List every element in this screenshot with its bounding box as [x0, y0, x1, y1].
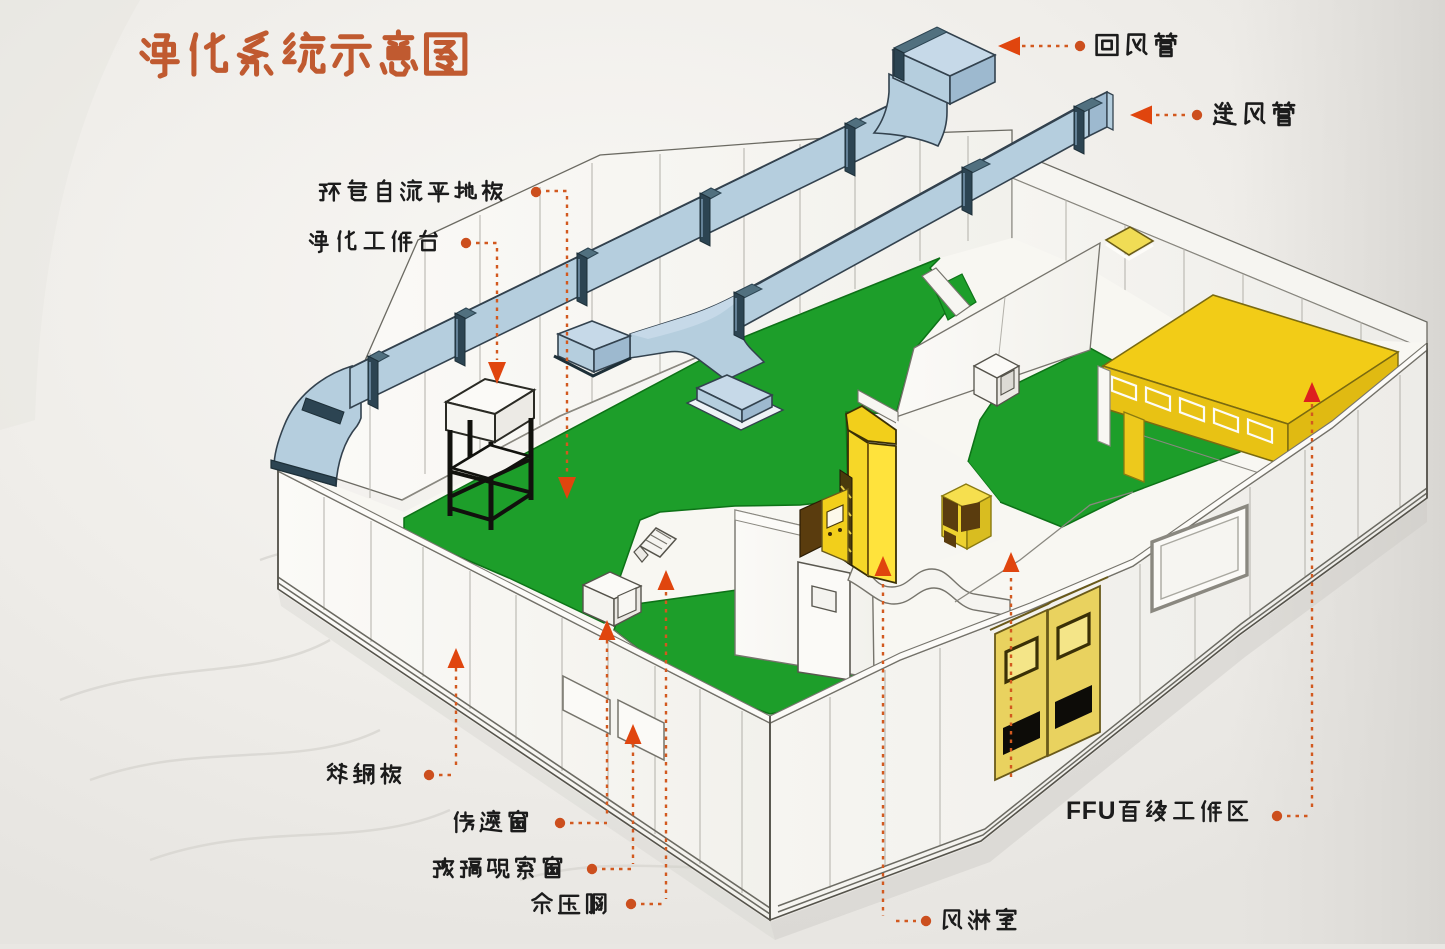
svg-text:F: F	[1082, 798, 1097, 825]
svg-text:U: U	[1098, 798, 1116, 825]
svg-text:F: F	[1066, 798, 1081, 825]
